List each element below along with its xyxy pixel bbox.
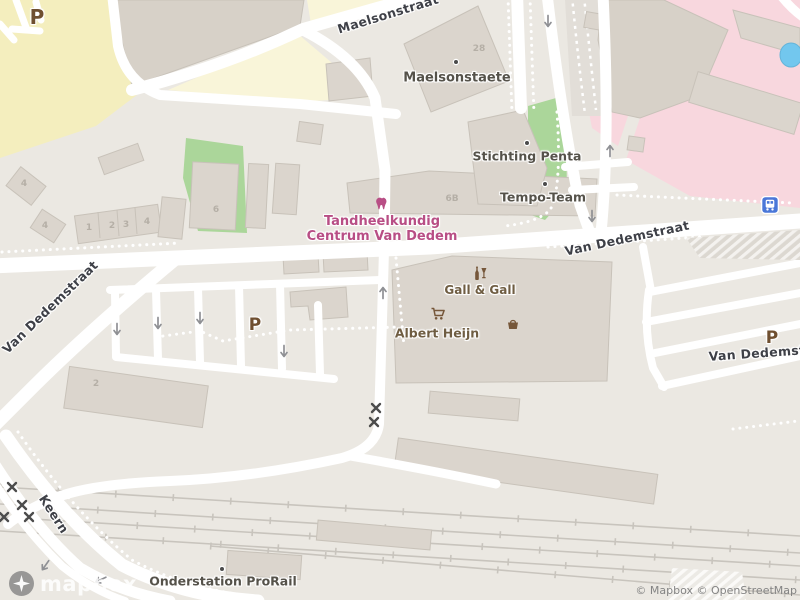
- house-number: 28: [473, 44, 486, 54]
- poi-label-tempo-team: Tempo-Team: [500, 190, 586, 205]
- poi-label-gall-and-gall: Gall & Gall: [444, 283, 515, 297]
- tandheelkundig-line1: Tandheelkundig: [307, 214, 458, 229]
- bottle-and-glass-icon: [472, 265, 488, 281]
- house-number: 3: [123, 220, 129, 230]
- attribution[interactable]: © Mapbox © OpenStreetMap: [635, 584, 797, 597]
- mapbox-logo[interactable]: mapbox: [8, 570, 137, 597]
- map-canvas[interactable]: Maelsonstraat Van Dedemstraat Van Dedems…: [0, 0, 800, 600]
- bus-icon: [761, 196, 780, 215]
- shopping-cart-icon: [431, 307, 446, 322]
- tandheelkundig-line2: Centrum Van Dedem: [307, 229, 458, 244]
- poi-label-tandheelkundig-centrum: Tandheelkundig Centrum Van Dedem: [307, 214, 458, 244]
- pond: [780, 43, 800, 67]
- parking-label-center: P: [249, 315, 261, 335]
- map-graphics: [0, 0, 800, 600]
- house-number: 4: [42, 221, 48, 231]
- house-number: 2: [93, 379, 99, 389]
- poi-label-maelsonstaete: Maelsonstaete: [403, 71, 510, 86]
- parking-label-nw: P: [30, 5, 45, 29]
- tooth-icon: [375, 197, 390, 212]
- house-number: 1: [86, 223, 92, 233]
- house-number: 6: [213, 205, 219, 215]
- building-albert-heijn: [392, 256, 612, 383]
- basket-icon: [506, 317, 520, 331]
- mapbox-logo-text: mapbox: [40, 572, 137, 596]
- parking-label-east: P: [766, 328, 778, 348]
- house-number: 4: [144, 217, 150, 227]
- house-number: 2: [109, 221, 115, 231]
- poi-label-stichting-penta: Stichting Penta: [473, 149, 582, 164]
- poi-label-onderstation-prorail: Onderstation ProRail: [149, 574, 297, 589]
- house-number: 6B: [445, 194, 458, 204]
- house-number: 4: [21, 179, 27, 189]
- mapbox-star-icon: [8, 570, 35, 597]
- poi-label-albert-heijn: Albert Heijn: [395, 326, 479, 341]
